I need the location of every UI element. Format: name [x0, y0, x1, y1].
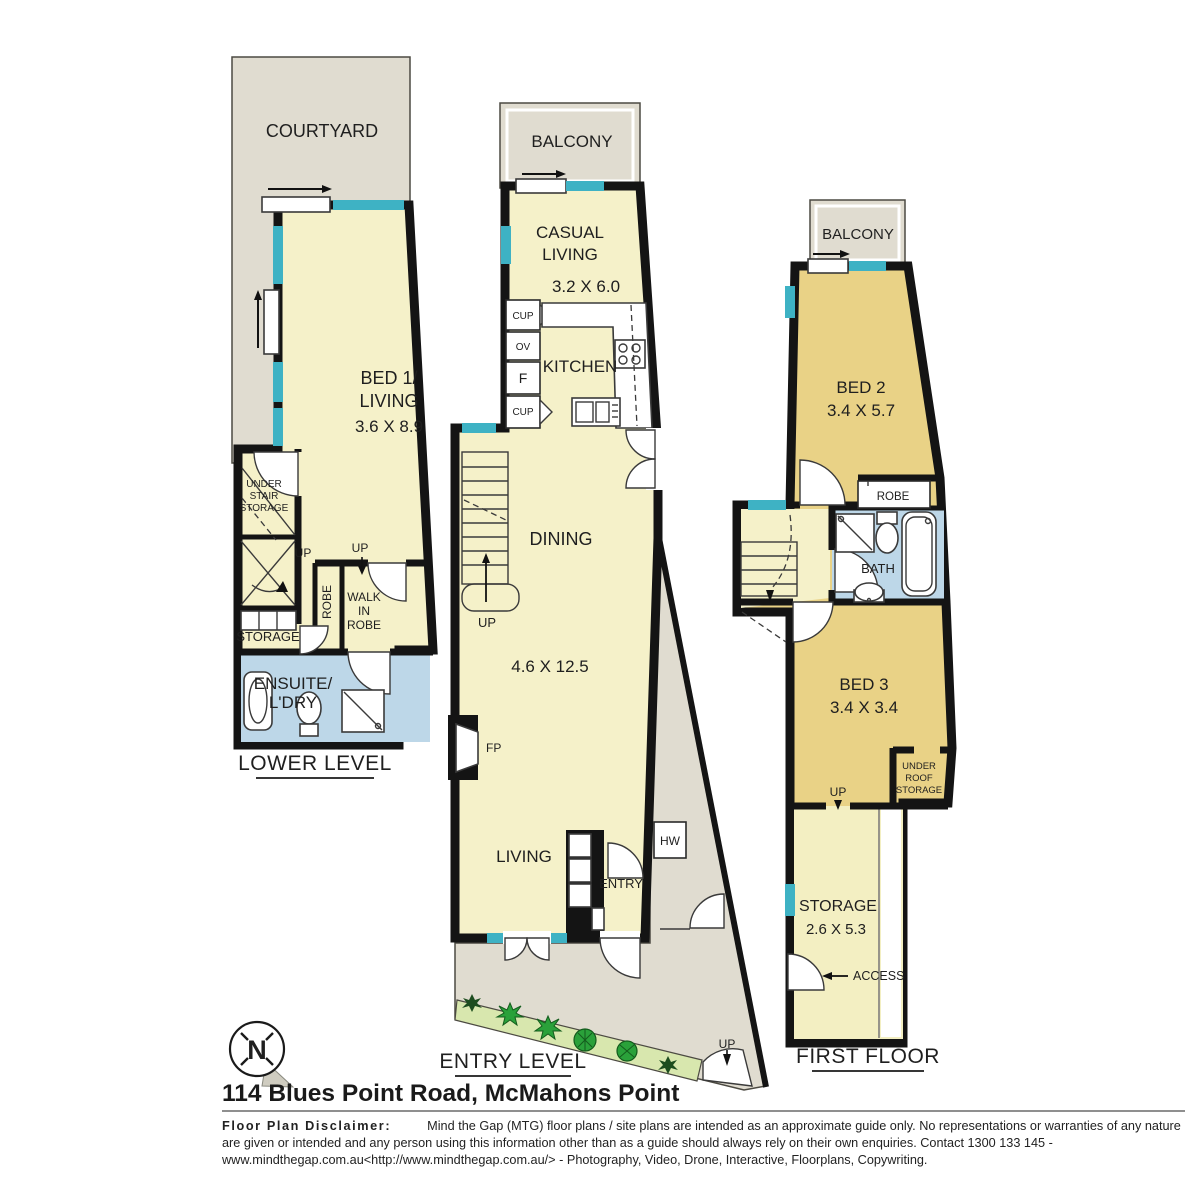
- compass-icon: N: [230, 1022, 293, 1087]
- casual-living-label: CASUAL: [536, 223, 604, 242]
- sliding-door: [262, 197, 330, 212]
- window: [487, 933, 503, 943]
- window: [501, 226, 511, 264]
- courtyard-label: COURTYARD: [266, 121, 378, 141]
- disclaimer-label: Floor Plan Disclaimer:: [222, 1119, 391, 1133]
- window: [785, 286, 795, 318]
- kitchen-label: KITCHEN: [543, 357, 618, 376]
- fridge-label: F: [519, 370, 528, 386]
- hw-label: HW: [660, 834, 681, 848]
- balcony-label: BALCONY: [822, 226, 894, 243]
- bed1-dims: 3.6 X 8.9: [355, 417, 423, 436]
- up-label: UP: [295, 546, 312, 560]
- window: [551, 933, 567, 943]
- cupboard-label: CUP: [512, 311, 533, 322]
- sink-icon: [572, 398, 620, 426]
- up-label: UP: [719, 1037, 736, 1051]
- window: [273, 408, 283, 446]
- oven-label: OV: [516, 342, 531, 353]
- bed1-label2: LIVING: [359, 391, 418, 411]
- storage-label: STORAGE: [236, 629, 300, 644]
- bed2-label: BED 2: [836, 378, 885, 397]
- landing-floor: [741, 509, 830, 608]
- bed3-dims: 3.4 X 3.4: [830, 698, 898, 717]
- casual-living-dims: 3.2 X 6.0: [552, 277, 620, 296]
- window: [273, 226, 283, 284]
- entry-level-title: ENTRY LEVEL: [439, 1050, 586, 1073]
- storage-shelving: [241, 611, 296, 630]
- bath-label: BATH: [861, 561, 895, 576]
- urs-label3: STORAGE: [896, 785, 942, 796]
- plan-lower-level: COURTYARD: [232, 57, 433, 778]
- ensuite-label2: L'DRY: [269, 693, 317, 712]
- bed3-label: BED 3: [839, 675, 888, 694]
- uss-label2: STAIR: [250, 491, 279, 502]
- storage-dims: 2.6 X 5.3: [806, 921, 866, 938]
- window: [462, 423, 496, 433]
- casual-living-label2: LIVING: [542, 245, 598, 264]
- sliding-door: [808, 259, 848, 273]
- cupboard-label: CUP: [512, 407, 533, 418]
- plan-entry-level: BALCONY CUP OV F CUP: [439, 103, 766, 1090]
- entry-label: ENTRY: [599, 876, 643, 891]
- wir-label3: ROBE: [347, 618, 381, 632]
- lower-level-title: LOWER LEVEL: [238, 752, 392, 775]
- up-label: UP: [830, 785, 847, 799]
- ensuite-label: ENSUITE/: [254, 674, 333, 693]
- urs-label: UNDER: [902, 761, 936, 772]
- entry-niche: [592, 908, 604, 930]
- sliding-door: [264, 290, 279, 354]
- disclaimer-block: Floor Plan Disclaimer:Mind the Gap (MTG)…: [222, 1118, 1188, 1169]
- dining-label: DINING: [530, 529, 593, 549]
- uss-label3: STORAGE: [240, 503, 289, 514]
- cooktop-icon: [615, 340, 645, 368]
- up-label: UP: [478, 615, 496, 630]
- bed2-dims: 3.4 X 5.7: [827, 401, 895, 420]
- bed1-label: BED 1/: [360, 368, 417, 388]
- storage-label: STORAGE: [799, 898, 877, 915]
- fp-label: FP: [486, 741, 501, 755]
- window: [566, 181, 604, 191]
- robe-label: ROBE: [877, 491, 910, 503]
- robe-label: ROBE: [320, 585, 334, 619]
- shower-icon: [342, 690, 384, 732]
- uss-label: UNDER: [246, 479, 282, 490]
- plan-first-floor: BALCONY ROBE: [737, 200, 952, 1071]
- window: [785, 884, 795, 916]
- wir-label2: IN: [358, 604, 370, 618]
- sliding-door: [516, 179, 566, 193]
- fireplace: [448, 715, 478, 780]
- north-label: N: [247, 1035, 267, 1065]
- urs-label2: ROOF: [905, 773, 933, 784]
- dining-dims: 4.6 X 12.5: [511, 657, 589, 676]
- window: [748, 500, 786, 510]
- first-floor-title: FIRST FLOOR: [796, 1045, 940, 1068]
- window: [849, 261, 886, 271]
- property-address: 114 Blues Point Road, McMahons Point: [222, 1080, 679, 1108]
- living-label: LIVING: [496, 847, 552, 866]
- up-label: UP: [352, 541, 369, 555]
- window: [273, 362, 283, 402]
- window: [333, 200, 404, 210]
- balcony-label: BALCONY: [531, 132, 612, 151]
- storage-void: [881, 809, 901, 1037]
- access-label: ACCESS: [853, 969, 904, 983]
- basin-icon: [854, 583, 884, 602]
- wir-label: WALK: [347, 590, 381, 604]
- footer-divider: [222, 1110, 1185, 1112]
- bathtub-icon: [902, 512, 936, 596]
- floorplan-page: COURTYARD: [0, 0, 1200, 1200]
- floorplan-canvas: COURTYARD: [0, 0, 1200, 1200]
- toilet-icon: [876, 512, 898, 553]
- shower-icon: [836, 514, 874, 552]
